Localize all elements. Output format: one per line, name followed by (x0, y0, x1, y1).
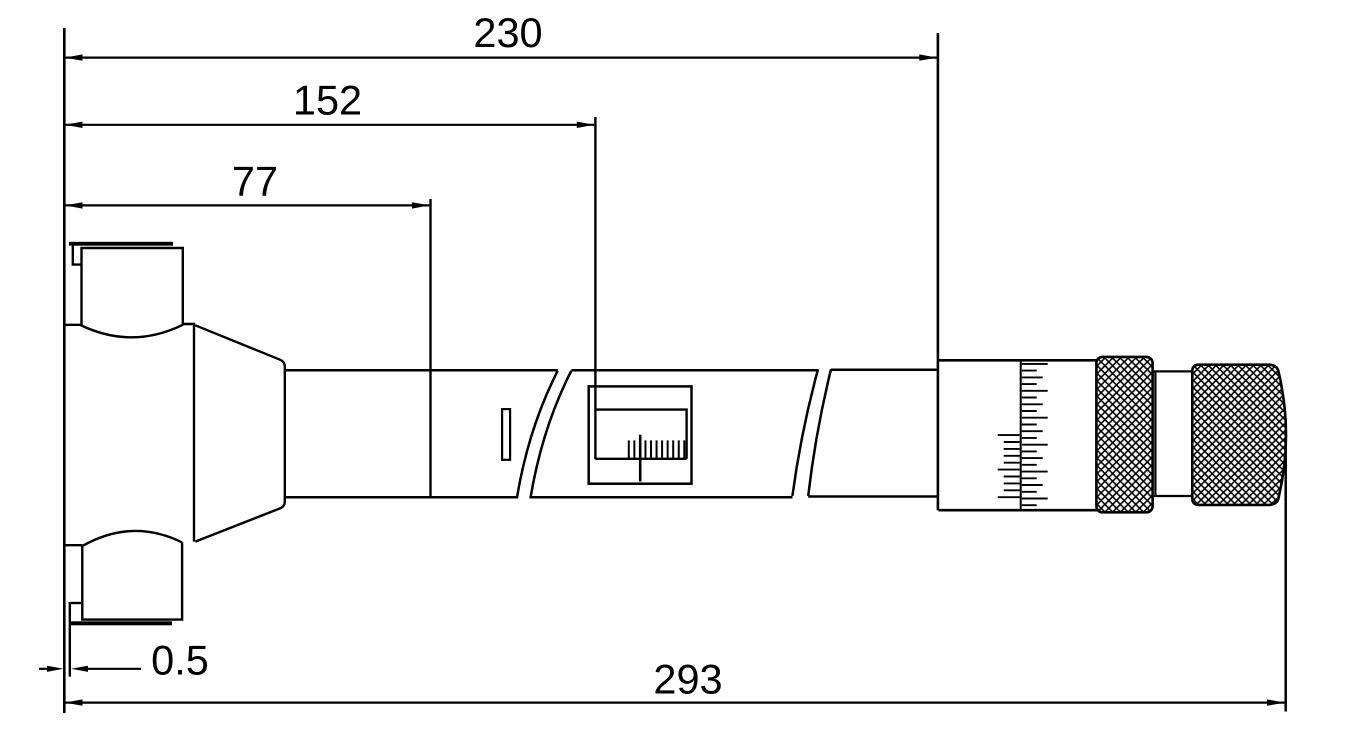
svg-text:0.5: 0.5 (151, 637, 209, 684)
svg-text:293: 293 (653, 656, 722, 703)
svg-text:230: 230 (473, 9, 542, 56)
svg-text:77: 77 (232, 158, 278, 205)
svg-text:152: 152 (293, 77, 362, 124)
